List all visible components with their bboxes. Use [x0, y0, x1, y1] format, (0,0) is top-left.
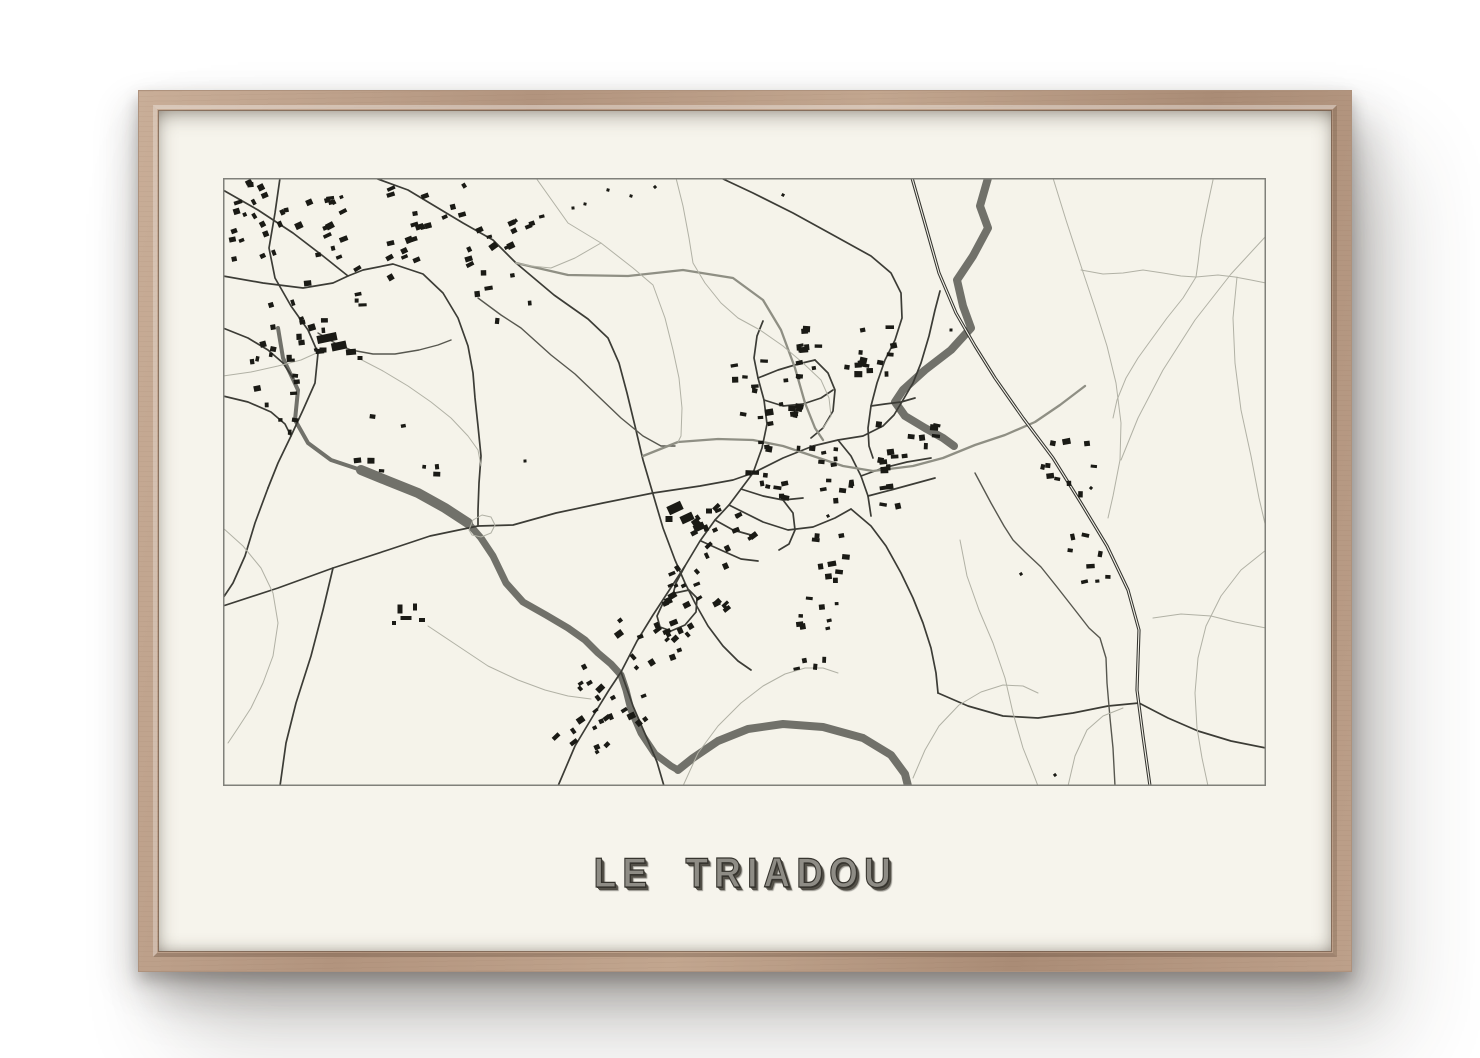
map-svg — [223, 178, 1266, 786]
poster-matte: LE TRIADOU — [159, 111, 1331, 951]
city-map — [223, 178, 1266, 786]
wall-background: LE TRIADOU — [0, 0, 1480, 1058]
poster-title-row: LE TRIADOU — [159, 852, 1331, 894]
poster-title: LE TRIADOU — [593, 852, 896, 894]
poster-frame: LE TRIADOU — [138, 90, 1352, 972]
